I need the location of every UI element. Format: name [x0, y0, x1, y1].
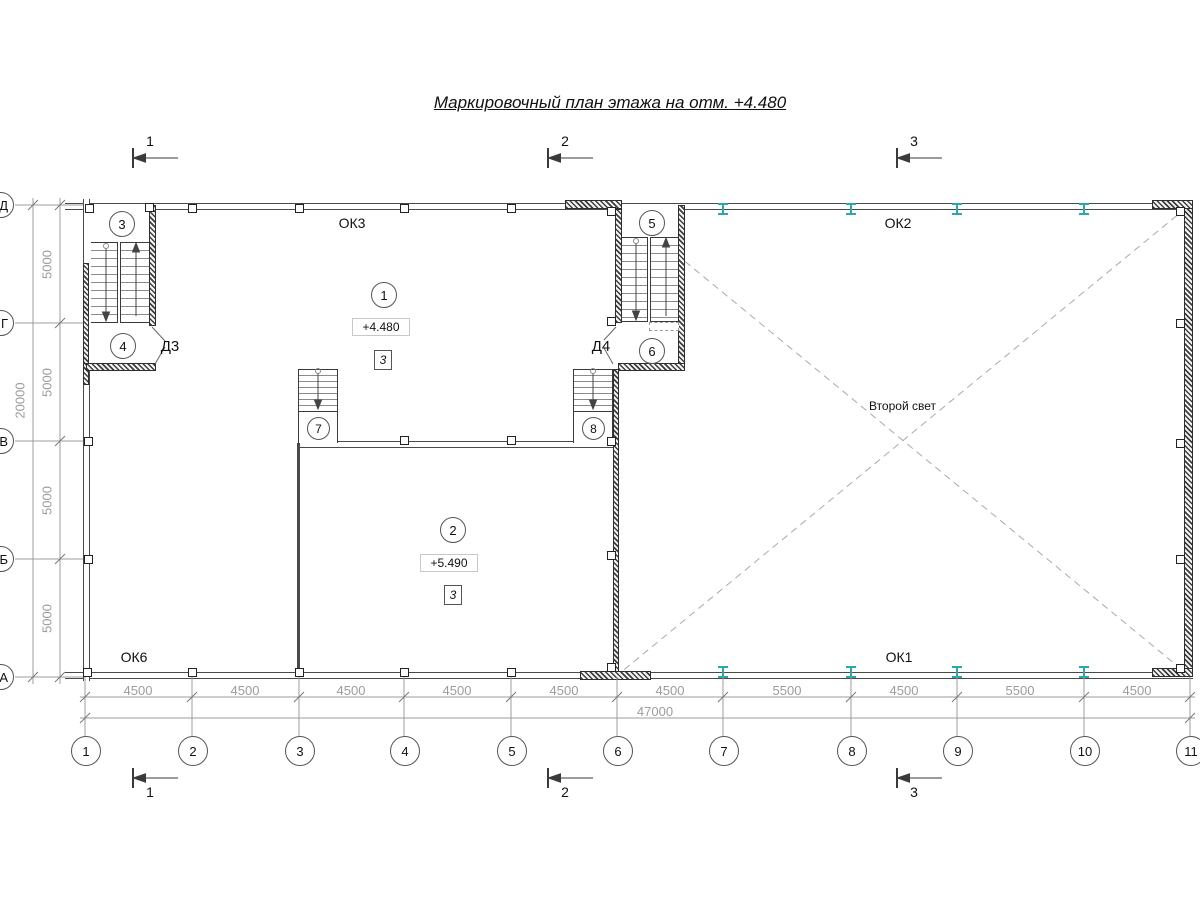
- zone-mark-3: 3: [109, 211, 135, 237]
- axis-bubble-col-9: 9: [943, 736, 973, 766]
- section-mark-3-bottom: 3: [906, 784, 922, 800]
- axis-label: Г: [1, 316, 8, 331]
- axis-label: 8: [848, 744, 855, 759]
- dim-segment: 4500: [534, 683, 594, 698]
- axis-label: Б: [0, 552, 8, 567]
- type-mark-label: 3: [380, 353, 387, 367]
- axis-bubble-col-3: 3: [285, 736, 315, 766]
- zone-mark-label: 5: [648, 216, 655, 231]
- dim-segment: 4500: [108, 683, 168, 698]
- axis-bubble-col-8: 8: [837, 736, 867, 766]
- elevation-mark-room2: +5.490: [420, 554, 478, 572]
- zone-mark-8: 8: [582, 417, 605, 440]
- door-label-d3: Д3: [153, 338, 187, 355]
- axis-label: 11: [1184, 744, 1198, 759]
- zone-mark-label: 2: [449, 523, 456, 538]
- zone-mark-6: 6: [639, 338, 665, 364]
- type-mark-room1: 3: [374, 350, 392, 370]
- dim-segment: 4500: [874, 683, 934, 698]
- type-mark-room2: 3: [444, 585, 462, 605]
- dim-segment: 5000: [40, 245, 55, 285]
- zone-mark-label: 4: [119, 339, 126, 354]
- zone-mark-7: 7: [307, 417, 330, 440]
- zone-mark-4: 4: [110, 333, 136, 359]
- axis-label: 7: [720, 744, 727, 759]
- axis-bubble-col-11: 11: [1176, 736, 1200, 766]
- axis-label: 6: [614, 744, 621, 759]
- zone-mark-2: 2: [440, 517, 466, 543]
- axis-label: 2: [189, 744, 196, 759]
- dim-segment: 4500: [640, 683, 700, 698]
- dim-segment: 5000: [40, 363, 55, 403]
- dim-segment: 5000: [40, 481, 55, 521]
- type-mark-label: 3: [450, 588, 457, 602]
- dim-segment: 5000: [40, 599, 55, 639]
- axis-bubble-col-1: 1: [71, 736, 101, 766]
- second-light-note: Второй свет: [845, 399, 960, 413]
- door-label-d4: Д4: [584, 338, 618, 355]
- elevation-mark-room1: +4.480: [352, 318, 410, 336]
- axis-bubble-col-2: 2: [178, 736, 208, 766]
- zone-mark-5: 5: [639, 210, 665, 236]
- dimension-ticks: [28, 200, 1195, 723]
- axis-bubble-col-6: 6: [603, 736, 633, 766]
- window-label-ok1: ОК1: [869, 649, 929, 665]
- zone-mark-label: 7: [315, 422, 322, 436]
- zone-mark-label: 1: [380, 288, 387, 303]
- axis-label: 5: [508, 744, 515, 759]
- axis-label: 3: [296, 744, 303, 759]
- dim-segment: 4500: [1107, 683, 1167, 698]
- window-label-ok6: ОК6: [104, 649, 164, 665]
- section-mark-2-bottom: 2: [557, 784, 573, 800]
- zone-mark-label: 6: [648, 344, 655, 359]
- drawing-title: Маркировочный план этажа на отм. +4.480: [300, 93, 920, 113]
- section-mark-3-top: 3: [906, 133, 922, 149]
- zone-mark-1: 1: [371, 282, 397, 308]
- dim-segment: 4500: [215, 683, 275, 698]
- axis-label: А: [0, 670, 8, 685]
- dim-total-left: 20000: [13, 381, 28, 421]
- floor-plan: Маркировочный план этажа на отм. +4.480 …: [0, 0, 1200, 900]
- dim-segment: 5500: [757, 683, 817, 698]
- window-label-ok3: ОК3: [322, 215, 382, 231]
- window-label-ok2: ОК2: [868, 215, 928, 231]
- axis-label: 9: [954, 744, 961, 759]
- dim-segment: 4500: [427, 683, 487, 698]
- axis-bubble-col-7: 7: [709, 736, 739, 766]
- axis-bubble-col-10: 10: [1070, 736, 1100, 766]
- axis-label: 1: [82, 744, 89, 759]
- section-mark-1-bottom: 1: [142, 784, 158, 800]
- axis-bubble-col-4: 4: [390, 736, 420, 766]
- axis-bubble-col-5: 5: [497, 736, 527, 766]
- axis-label: 10: [1078, 744, 1092, 759]
- zone-mark-label: 8: [590, 422, 597, 436]
- axis-label: 4: [401, 744, 408, 759]
- dim-segment: 4500: [321, 683, 381, 698]
- linework-layer: [0, 0, 1200, 900]
- zone-mark-label: 3: [118, 217, 125, 232]
- dim-segment: 5500: [990, 683, 1050, 698]
- section-mark-1-top: 1: [142, 133, 158, 149]
- section-mark-2-top: 2: [557, 133, 573, 149]
- dimension-lines: [15, 198, 1195, 736]
- axis-label: Д: [0, 198, 8, 213]
- axis-label: В: [0, 434, 8, 449]
- dim-total-bottom: 47000: [630, 704, 680, 719]
